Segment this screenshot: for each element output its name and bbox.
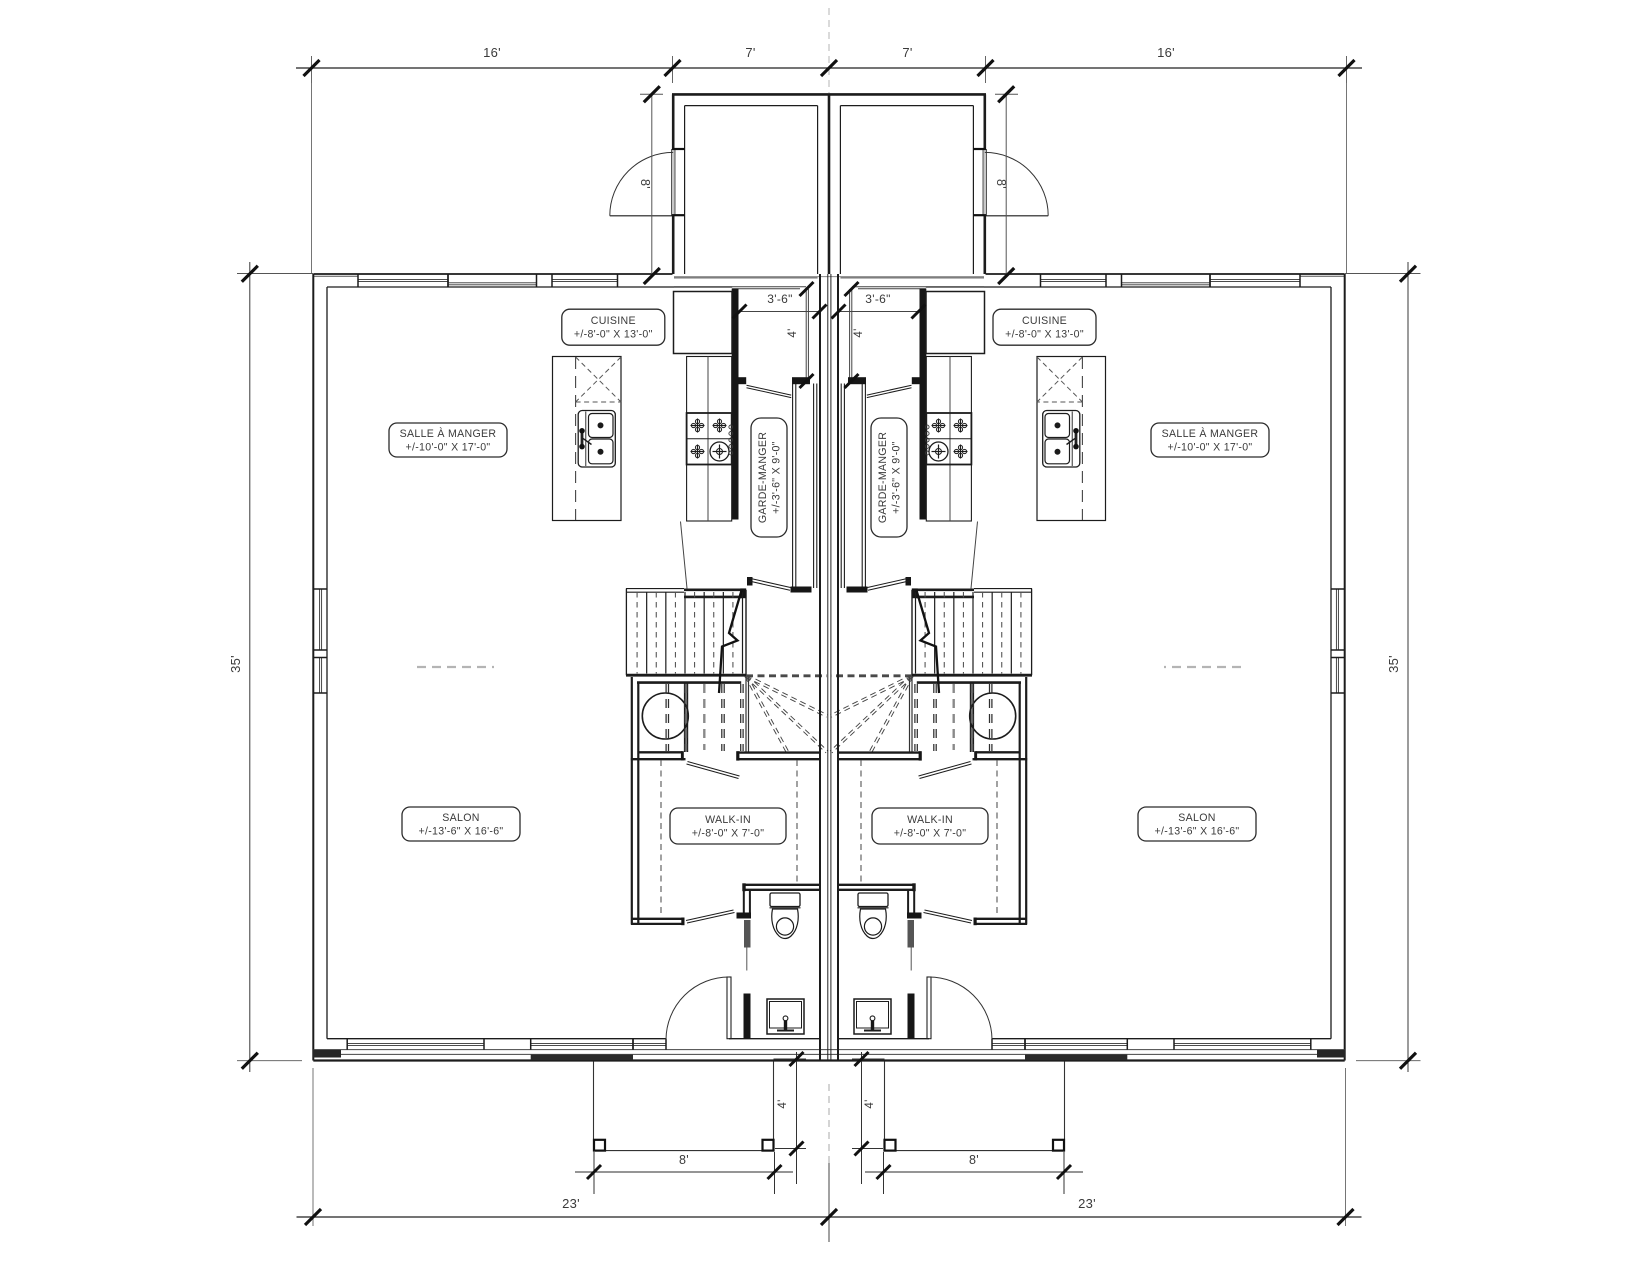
svg-text:8': 8' <box>679 1153 689 1167</box>
svg-text:8': 8' <box>638 179 652 189</box>
svg-text:+/-3'-6" X 9'-0": +/-3'-6" X 9'-0" <box>770 441 782 514</box>
svg-text:WALK-IN: WALK-IN <box>907 814 953 826</box>
svg-text:+/-8'-0" X 13'-0": +/-8'-0" X 13'-0" <box>1005 329 1084 341</box>
svg-text:23': 23' <box>562 1196 580 1211</box>
svg-text:35': 35' <box>228 655 243 673</box>
svg-text:WALK-IN: WALK-IN <box>705 814 751 826</box>
svg-text:+/-8'-0" X 7'-0": +/-8'-0" X 7'-0" <box>692 827 765 839</box>
svg-text:SALON: SALON <box>1178 812 1215 824</box>
svg-text:GARDE-MANGER: GARDE-MANGER <box>877 432 889 523</box>
svg-text:3'-6": 3'-6" <box>767 292 792 306</box>
svg-text:+/-10'-0" X 17'-0": +/-10'-0" X 17'-0" <box>1168 441 1253 453</box>
svg-text:SALLE À MANGER: SALLE À MANGER <box>1162 427 1259 440</box>
svg-text:+/-8'-0" X 13'-0": +/-8'-0" X 13'-0" <box>574 329 653 341</box>
svg-text:8': 8' <box>969 1153 979 1167</box>
svg-text:4': 4' <box>777 1099 789 1108</box>
svg-text:16': 16' <box>483 45 501 60</box>
svg-text:23': 23' <box>1078 1196 1096 1211</box>
svg-text:4': 4' <box>787 328 799 337</box>
svg-text:CUISINE: CUISINE <box>1022 315 1067 327</box>
svg-text:4': 4' <box>853 328 865 337</box>
svg-text:CUISINE: CUISINE <box>591 315 636 327</box>
svg-text:3'-6": 3'-6" <box>865 292 890 306</box>
svg-text:+/-13'-6" X 16'-6": +/-13'-6" X 16'-6" <box>1155 825 1240 837</box>
svg-text:GARDE-MANGER: GARDE-MANGER <box>757 432 769 523</box>
svg-text:4': 4' <box>864 1099 876 1108</box>
svg-text:+/-10'-0" X 17'-0": +/-10'-0" X 17'-0" <box>406 441 491 453</box>
svg-text:8': 8' <box>994 179 1008 189</box>
svg-text:7': 7' <box>745 45 755 60</box>
svg-text:SALON: SALON <box>442 812 479 824</box>
svg-text:35': 35' <box>1386 655 1401 673</box>
svg-text:+/-8'-0" X 7'-0": +/-8'-0" X 7'-0" <box>894 827 967 839</box>
svg-text:SALLE À MANGER: SALLE À MANGER <box>400 427 497 440</box>
svg-text:7': 7' <box>902 45 912 60</box>
svg-text:+/-3'-6" X 9'-0": +/-3'-6" X 9'-0" <box>890 441 902 514</box>
svg-text:16': 16' <box>1157 45 1175 60</box>
svg-text:+/-13'-6" X 16'-6": +/-13'-6" X 16'-6" <box>419 825 504 837</box>
